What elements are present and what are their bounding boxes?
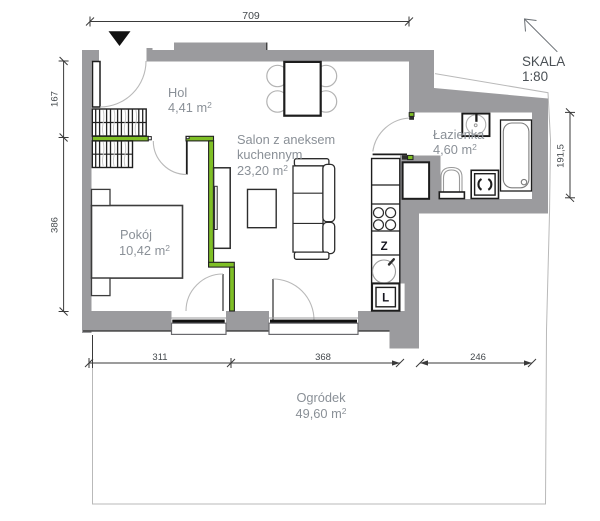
svg-text:SKALA: SKALA <box>522 54 565 69</box>
svg-text:Łazienka: Łazienka <box>433 127 485 142</box>
svg-text:kuchennym: kuchennym <box>237 147 302 162</box>
svg-text:Hol: Hol <box>168 85 187 100</box>
svg-text:10,42 m2: 10,42 m2 <box>119 243 170 258</box>
svg-text:Ogródek: Ogródek <box>296 390 346 405</box>
svg-text:709: 709 <box>242 10 260 22</box>
svg-text:Pokój: Pokój <box>120 227 152 242</box>
svg-text:49,60 m2: 49,60 m2 <box>296 406 347 421</box>
svg-text:1:80: 1:80 <box>522 69 548 84</box>
svg-text:386: 386 <box>50 217 61 233</box>
svg-text:191,5: 191,5 <box>556 144 567 168</box>
svg-text:4,41 m2: 4,41 m2 <box>168 100 212 115</box>
svg-text:L: L <box>382 293 389 305</box>
svg-text:Z: Z <box>381 241 388 253</box>
svg-text:167: 167 <box>50 91 61 107</box>
svg-text:23,20 m2: 23,20 m2 <box>237 163 288 178</box>
svg-text:Salon z aneksem: Salon z aneksem <box>237 132 335 147</box>
svg-text:246: 246 <box>470 352 486 363</box>
svg-text:368: 368 <box>315 352 331 363</box>
svg-text:4,60 m2: 4,60 m2 <box>433 142 477 157</box>
svg-text:311: 311 <box>152 352 167 363</box>
